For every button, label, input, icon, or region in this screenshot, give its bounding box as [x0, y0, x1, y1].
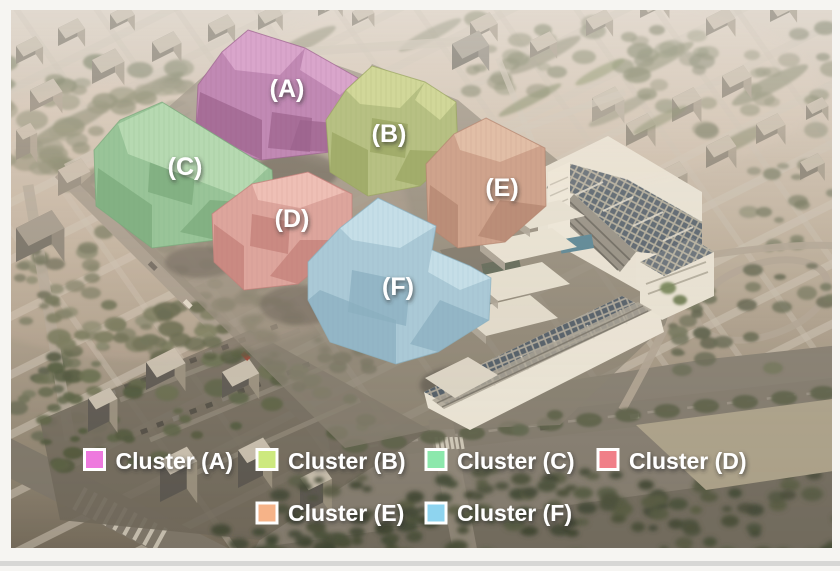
svg-text:(B): (B): [372, 120, 407, 148]
svg-text:Cluster (A): Cluster (A): [116, 448, 234, 474]
svg-text:(E): (E): [485, 174, 518, 202]
svg-text:Cluster (E): Cluster (E): [288, 500, 404, 526]
svg-text:Cluster (D): Cluster (D): [629, 448, 747, 474]
svg-text:Cluster (F): Cluster (F): [457, 500, 572, 526]
svg-text:(D): (D): [275, 205, 310, 233]
svg-text:Cluster (C): Cluster (C): [457, 448, 575, 474]
svg-text:(A): (A): [270, 75, 305, 103]
svg-text:Cluster (B): Cluster (B): [288, 448, 406, 474]
svg-text:(F): (F): [382, 273, 414, 301]
svg-text:(C): (C): [168, 153, 203, 181]
